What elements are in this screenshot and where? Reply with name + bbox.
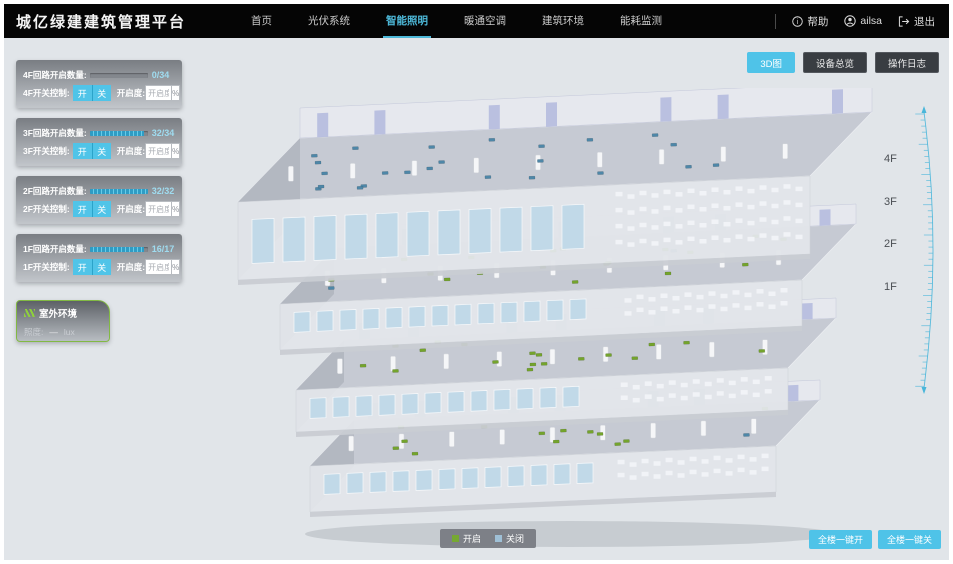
- on-off-switch: 开 关: [73, 143, 111, 159]
- floor-panel-1f: 1F回路开启数量: 16/17 1F开关控制: 开 关 开启度: %: [16, 234, 182, 282]
- nav-item-smart-lighting[interactable]: 智能照明: [383, 4, 431, 38]
- main-nav: 首页 光伏系统 智能照明 暖通空调 建筑环境 能耗监测: [248, 4, 665, 38]
- openness-label: 开启度:: [117, 203, 145, 215]
- user-utils: i 帮助 ailsa 退出: [775, 14, 949, 29]
- percent-button[interactable]: %: [172, 85, 180, 101]
- floor-off-button[interactable]: 关: [92, 143, 111, 159]
- logout-icon: [898, 16, 910, 27]
- illuminance-unit: lux: [64, 327, 75, 337]
- switch-control-label: 2F开关控制:: [23, 203, 70, 215]
- top-navbar: 城亿绿建建筑管理平台 首页 光伏系统 智能照明 暖通空调 建筑环境 能耗监测 i…: [4, 4, 949, 38]
- loop-progress-bar: [90, 131, 148, 136]
- floor-label-1f[interactable]: 1F: [884, 281, 897, 293]
- on-off-switch: 开 关: [73, 201, 111, 217]
- percent-button[interactable]: %: [172, 259, 180, 275]
- openness-input[interactable]: [145, 85, 172, 101]
- legend-on-swatch: [452, 535, 459, 542]
- illuminance-value: —: [49, 327, 58, 337]
- loop-count-label: 2F回路开启数量:: [23, 185, 87, 197]
- percent-button[interactable]: %: [172, 201, 180, 217]
- legend-off-swatch: [495, 535, 502, 542]
- floor-label-4f[interactable]: 4F: [884, 153, 897, 165]
- logout-button[interactable]: 退出: [898, 14, 935, 29]
- nav-item-home[interactable]: 首页: [248, 4, 275, 38]
- floor-off-button[interactable]: 关: [92, 259, 111, 275]
- floor-on-button[interactable]: 开: [73, 201, 92, 217]
- floor-on-button[interactable]: 开: [73, 143, 92, 159]
- loop-progress-bar: [90, 247, 148, 252]
- main-canvas: 4F回路开启数量: 0/34 4F开关控制: 开 关 开启度: %: [4, 38, 949, 560]
- openness-input[interactable]: [145, 201, 172, 217]
- user-name: ailsa: [860, 15, 882, 27]
- env-stripes-icon: [24, 309, 35, 317]
- openness-label: 开启度:: [117, 261, 145, 273]
- loop-count-label: 1F回路开启数量:: [23, 243, 87, 255]
- loop-count-value: 32/32: [152, 186, 175, 196]
- openness-input[interactable]: [145, 143, 172, 159]
- illuminance-label: 照度:: [24, 326, 43, 338]
- all-on-button[interactable]: 全楼一键开: [809, 530, 872, 549]
- app-window: 城亿绿建建筑管理平台 首页 光伏系统 智能照明 暖通空调 建筑环境 能耗监测 i…: [4, 4, 949, 560]
- legend-on-label: 开启: [463, 532, 481, 545]
- nav-item-pv-system[interactable]: 光伏系统: [305, 4, 353, 38]
- nav-item-hvac[interactable]: 暖通空调: [461, 4, 509, 38]
- bulk-controls: 全楼一键开 全楼一键关: [809, 530, 941, 549]
- switch-control-label: 3F开关控制:: [23, 145, 70, 157]
- loop-progress-bar: [90, 73, 148, 78]
- loop-progress-bar: [90, 189, 148, 194]
- floor-on-button[interactable]: 开: [73, 85, 92, 101]
- help-label: 帮助: [807, 14, 828, 29]
- user-icon: [844, 15, 856, 27]
- loop-count-label: 3F回路开启数量:: [23, 127, 87, 139]
- on-off-switch: 开 关: [73, 259, 111, 275]
- logout-label: 退出: [914, 14, 935, 29]
- view-3d-button[interactable]: 3D图: [747, 52, 795, 73]
- legend-off-label: 关闭: [506, 532, 524, 545]
- floor-label-2f[interactable]: 2F: [884, 238, 897, 250]
- openness-label: 开启度:: [117, 87, 145, 99]
- outdoor-env-panel: 室外环境 照度: — lux: [16, 300, 110, 342]
- floor-on-button[interactable]: 开: [73, 259, 92, 275]
- loop-count-value: 32/34: [152, 128, 175, 138]
- info-icon: i: [792, 16, 803, 27]
- svg-text:i: i: [797, 18, 799, 25]
- openness-input[interactable]: [145, 259, 172, 275]
- on-off-switch: 开 关: [73, 85, 111, 101]
- floor-panel-3f: 3F回路开启数量: 32/34 3F开关控制: 开 关 开启度: %: [16, 118, 182, 166]
- floor-ruler-slider[interactable]: [902, 104, 946, 396]
- floor-panel-2f: 2F回路开启数量: 32/32 2F开关控制: 开 关 开启度: %: [16, 176, 182, 224]
- floor-off-button[interactable]: 关: [92, 85, 111, 101]
- outdoor-env-title: 室外环境: [39, 306, 77, 320]
- user-menu[interactable]: ailsa: [844, 15, 882, 27]
- floor-off-button[interactable]: 关: [92, 201, 111, 217]
- floor-control-panels: 4F回路开启数量: 0/34 4F开关控制: 开 关 开启度: %: [16, 60, 184, 342]
- loop-count-value: 0/34: [152, 70, 170, 80]
- openness-label: 开启度:: [117, 145, 145, 157]
- loop-count-label: 4F回路开启数量:: [23, 69, 87, 81]
- building-3d-model[interactable]: [180, 88, 910, 560]
- view-toolbar: 3D图 设备总览 操作日志: [747, 52, 939, 73]
- percent-button[interactable]: %: [172, 143, 180, 159]
- device-overview-button[interactable]: 设备总览: [803, 52, 867, 73]
- floor-panel-4f: 4F回路开启数量: 0/34 4F开关控制: 开 关 开启度: %: [16, 60, 182, 108]
- operation-log-button[interactable]: 操作日志: [875, 52, 939, 73]
- all-off-button[interactable]: 全楼一键关: [878, 530, 941, 549]
- floor-label-3f[interactable]: 3F: [884, 196, 897, 208]
- light-status-legend: 开启 关闭: [440, 529, 536, 548]
- switch-control-label: 4F开关控制:: [23, 87, 70, 99]
- nav-item-building-env[interactable]: 建筑环境: [539, 4, 587, 38]
- divider: [775, 14, 776, 29]
- app-title: 城亿绿建建筑管理平台: [4, 11, 186, 32]
- loop-count-value: 16/17: [152, 244, 175, 254]
- help-button[interactable]: i 帮助: [792, 14, 828, 29]
- switch-control-label: 1F开关控制:: [23, 261, 70, 273]
- nav-item-energy-monitor[interactable]: 能耗监测: [617, 4, 665, 38]
